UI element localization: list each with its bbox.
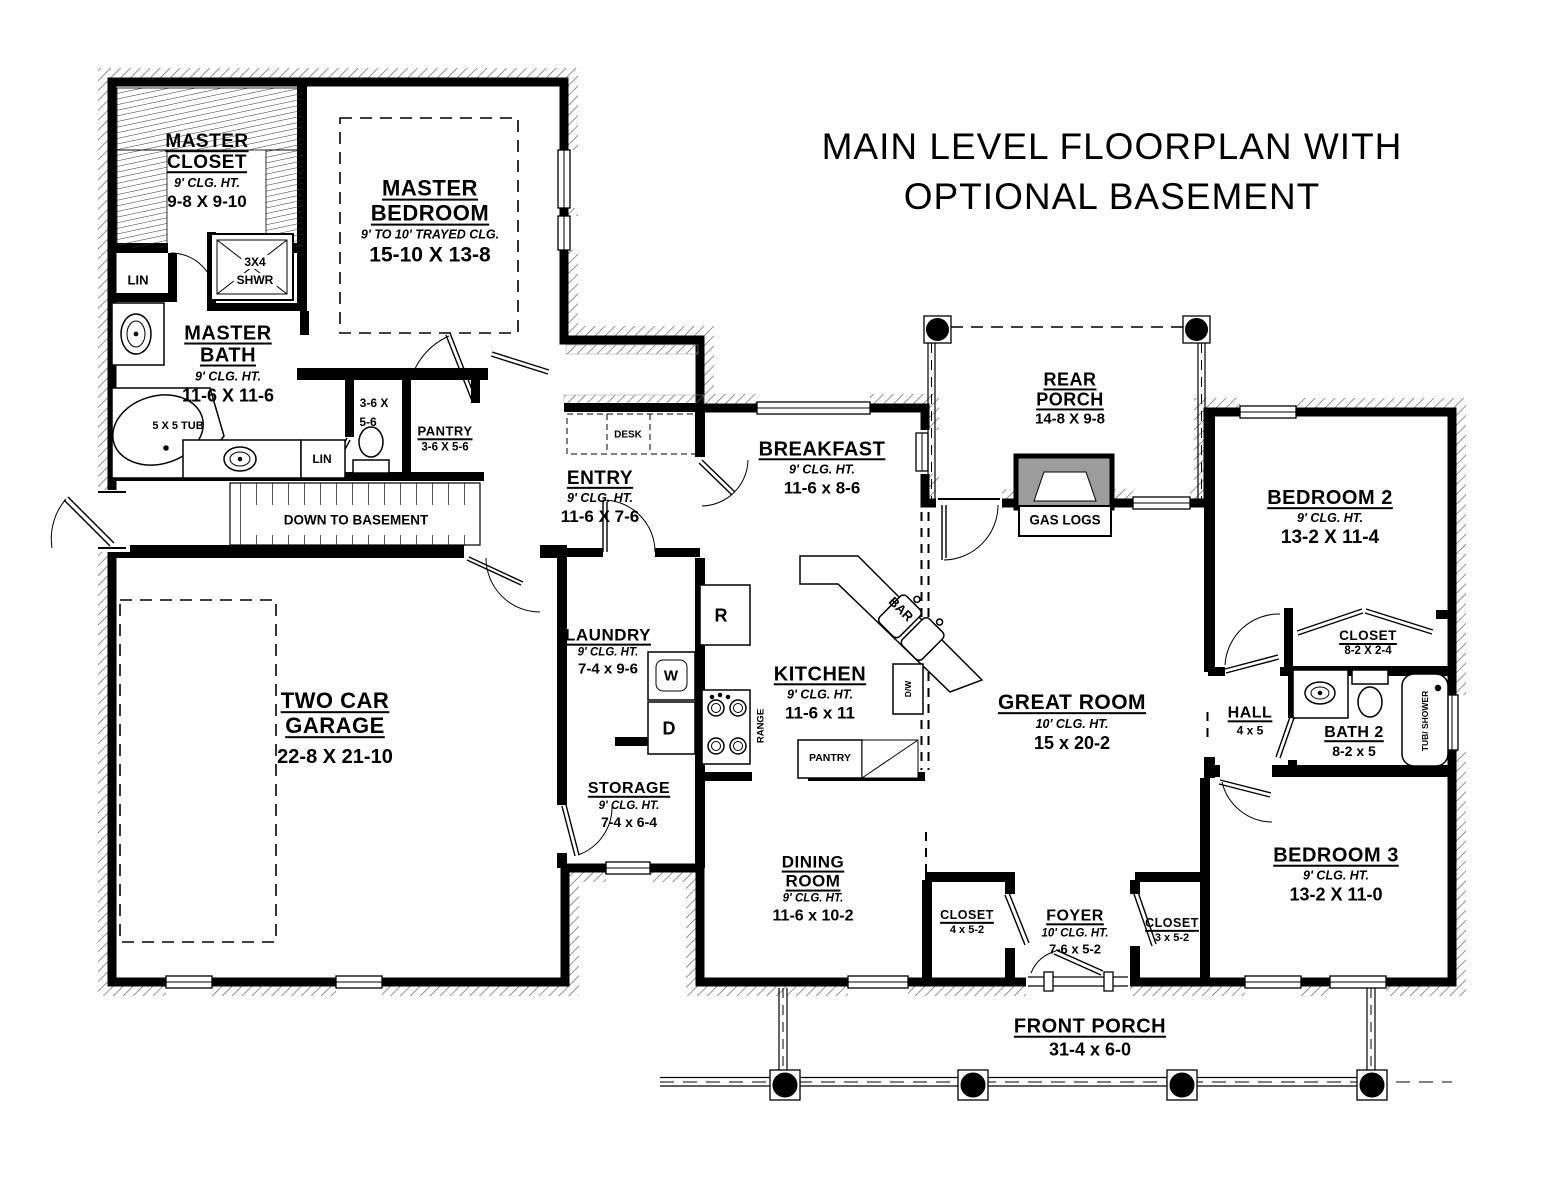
strip-wall-hatch [564,395,704,404]
bath2-toilet-tank [1352,670,1388,684]
label-breakfast: BREAKFAST 9' CLG. HT. 11-6 x 8-6 [759,438,886,497]
label-tub-shower: TUB/ SHOWER [1420,691,1430,751]
dining-window [848,964,908,998]
range [702,690,750,764]
toilet-tank [353,460,389,473]
greatroom-window [1133,485,1190,519]
label-fridge: R [715,606,728,627]
label-foyer-closet-right: CLOSET 3 x 5-2 [1145,916,1199,944]
label-master-closet: MASTER CLOSET 9' CLG. HT. 9-8 X 9-10 [165,131,248,211]
label-tub: 5 X 5 TUB [152,420,203,432]
label-bath2: BATH 2 8-2 x 5 [1324,724,1384,760]
label-front-porch: FRONT PORCH 31-4 x 6-0 [1014,1016,1166,1061]
bedroom2-window [1240,394,1296,428]
label-great-room: GREAT ROOM 10' CLG. HT. 15 x 20-2 [998,691,1146,753]
garage-window-2 [336,964,382,998]
label-linen2: LIN [312,452,331,466]
bedroom3-window-2 [1330,964,1386,998]
breakfast-porch-window [908,430,942,474]
label-pantry1: PANTRY 3-6 X 5-6 [418,424,473,453]
label-gas-logs: GAS LOGS [1029,513,1100,528]
floorplan-page: MAIN LEVEL FLOORPLAN WITH OPTIONAL BASEM… [0,0,1557,1180]
label-wc-dims2: 5-6 [359,415,376,429]
label-bedroom2-closet: CLOSET 8-2 X 2-4 [1339,628,1397,658]
label-shower: SHWR [234,273,277,287]
bath2-toilet-bowl [1358,687,1382,717]
label-storage: STORAGE 9' CLG. HT. 7-4 x 6-4 [588,780,670,830]
label-linen1: LIN [128,273,149,288]
plan-title-line2: OPTIONAL BASEMENT [822,172,1403,222]
label-wc-dims1: 3-6 X [360,396,389,410]
label-kitchen: KITCHEN 9' CLG. HT. 11-6 x 11 [774,663,866,722]
label-dishwasher: D/W [903,681,913,698]
breakfast-window [757,390,870,424]
label-hall: HALL 4 x 5 [1228,704,1273,737]
garage-side-door-opening [94,490,130,552]
bedroom3-window-1 [1245,964,1301,998]
label-rear-porch: REAR PORCH 14-8 X 9-8 [1035,369,1105,428]
label-shower-size: 3X4 [241,255,268,269]
label-stairs: DOWN TO BASEMENT [284,513,429,528]
label-laundry: LAUNDRY 9' CLG. HT. 7-4 x 9-6 [565,626,651,679]
label-dining-room: DINING ROOM 9' CLG. HT. 11-6 x 10-2 [773,853,854,926]
label-range: RANGE [756,709,767,743]
plan-title: MAIN LEVEL FLOORPLAN WITH OPTIONAL BASEM… [822,122,1403,222]
storage-window [606,850,650,884]
label-bedroom2: BEDROOM 2 9' CLG. HT. 13-2 X 11-4 [1267,487,1393,549]
label-washer: W [664,668,678,685]
label-foyer: FOYER 10' CLG. HT. 7-6 x 5-2 [1041,907,1108,956]
master-bedroom-window-2 [546,216,580,250]
label-bedroom3: BEDROOM 3 9' CLG. HT. 13-2 X 11-0 [1273,845,1399,906]
label-pantry2: PANTRY [809,752,851,764]
label-desk: DESK [614,430,642,441]
label-dryer: D [663,719,676,740]
toilet-bowl [359,427,383,457]
strip-wall [564,403,704,412]
label-foyer-closet-left: CLOSET 4 x 5-2 [940,908,994,936]
label-master-bedroom: MASTER BEDROOM 9' TO 10' TRAYED CLG. 15-… [361,177,499,268]
master-bedroom-window-1 [546,150,580,208]
label-entry: ENTRY 9' CLG. HT. 11-6 X 7-6 [561,468,639,526]
label-master-bath: MASTER BATH 9' CLG. HT. 11-6 X 11-6 [182,323,274,406]
garage-window-1 [166,964,212,998]
plan-title-line1: MAIN LEVEL FLOORPLAN WITH [822,122,1403,172]
label-garage: TWO CAR GARAGE 22-8 X 21-10 [277,689,393,769]
